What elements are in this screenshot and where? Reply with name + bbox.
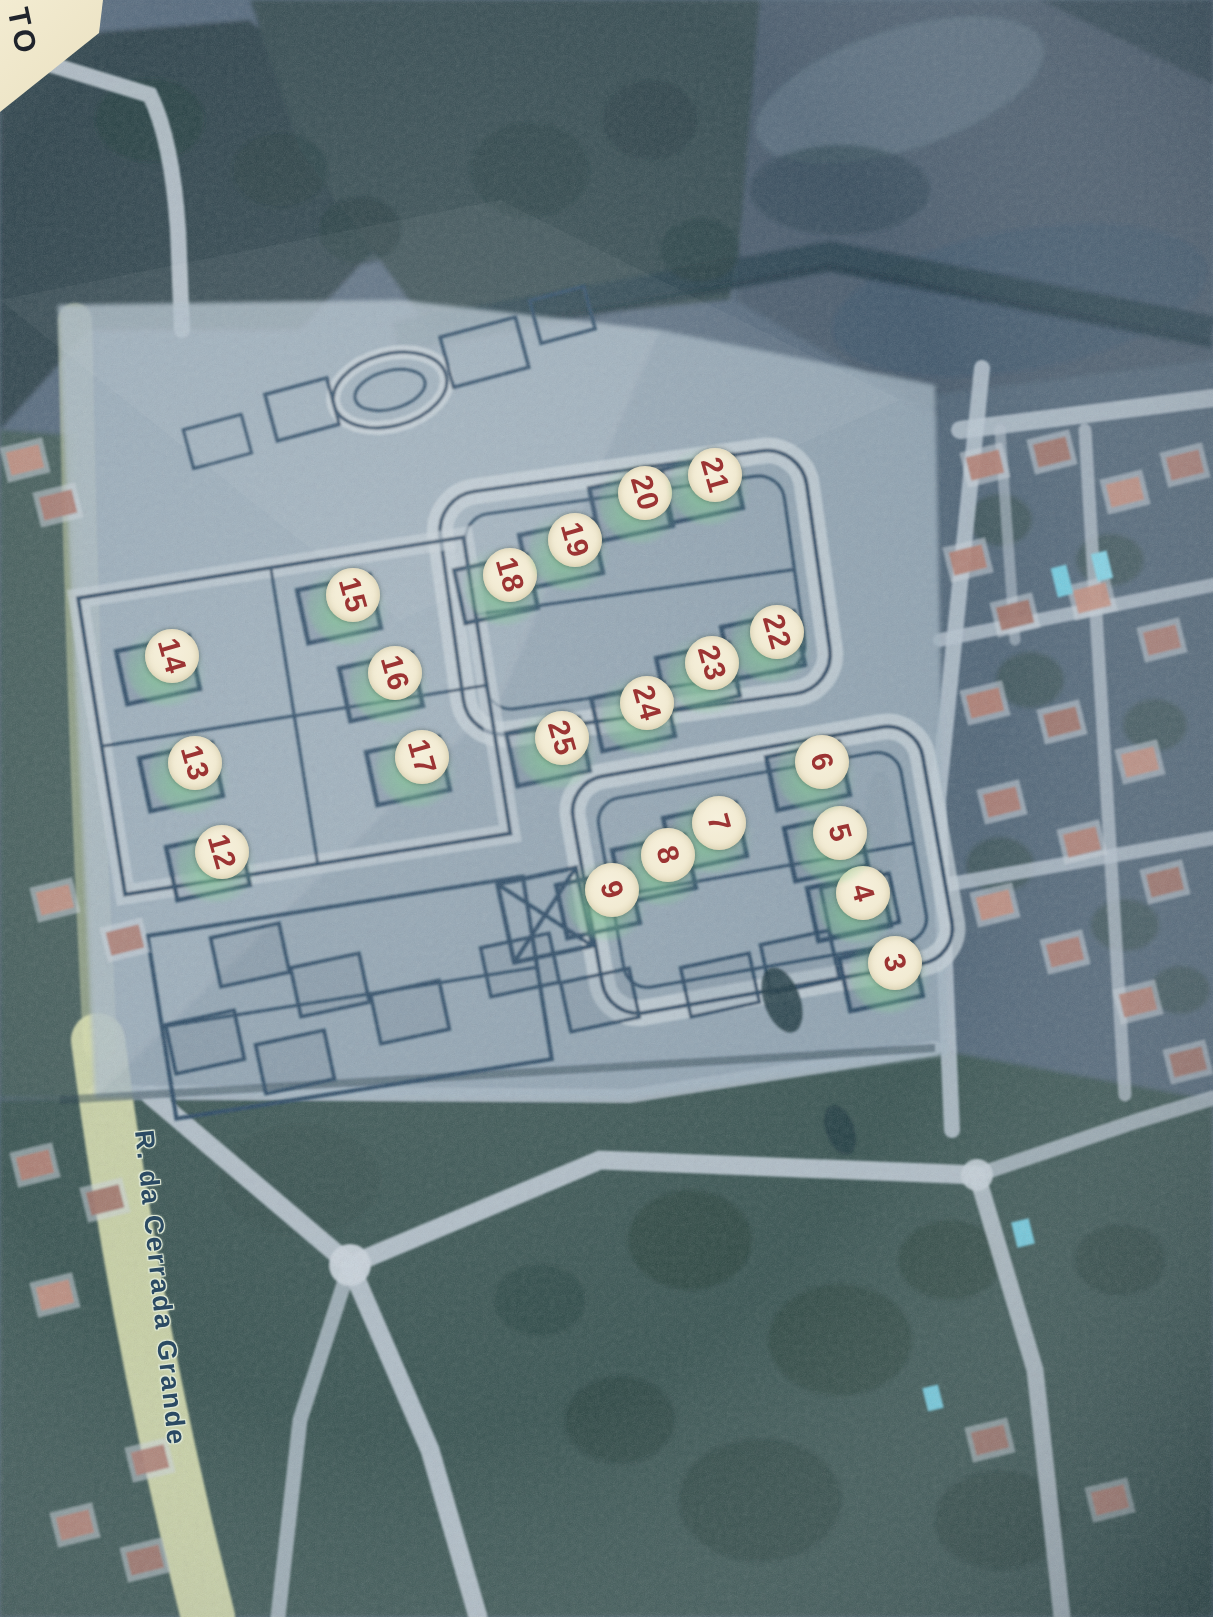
- lot-marker-20[interactable]: 20: [618, 466, 672, 520]
- lot-marker-15[interactable]: 15: [326, 568, 380, 622]
- lot-marker-23[interactable]: 23: [685, 636, 739, 690]
- printed-aerial-map: R. da Cerrada Grande 3456789121314151617…: [0, 0, 1213, 1617]
- lot-marker-14[interactable]: 14: [145, 629, 199, 683]
- lot-marker-7[interactable]: 7: [692, 796, 746, 850]
- lot-marker-13[interactable]: 13: [168, 736, 222, 790]
- lot-marker-9[interactable]: 9: [585, 863, 639, 917]
- lot-marker-12[interactable]: 12: [195, 825, 249, 879]
- lot-marker-3[interactable]: 3: [868, 936, 922, 990]
- lot-marker-21[interactable]: 21: [688, 448, 742, 502]
- lot-marker-16[interactable]: 16: [368, 646, 422, 700]
- lot-marker-19[interactable]: 19: [548, 513, 602, 567]
- lot-marker-25[interactable]: 25: [535, 711, 589, 765]
- lot-marker-6[interactable]: 6: [795, 735, 849, 789]
- lot-marker-24[interactable]: 24: [620, 676, 674, 730]
- lot-marker-17[interactable]: 17: [395, 730, 449, 784]
- lot-marker-22[interactable]: 22: [750, 605, 804, 659]
- lot-marker-5[interactable]: 5: [813, 806, 867, 860]
- corner-note-text: TO: [1, 5, 44, 60]
- lot-marker-8[interactable]: 8: [641, 828, 695, 882]
- lot-markers-layer: 34567891213141516171819202122232425: [0, 0, 1213, 1617]
